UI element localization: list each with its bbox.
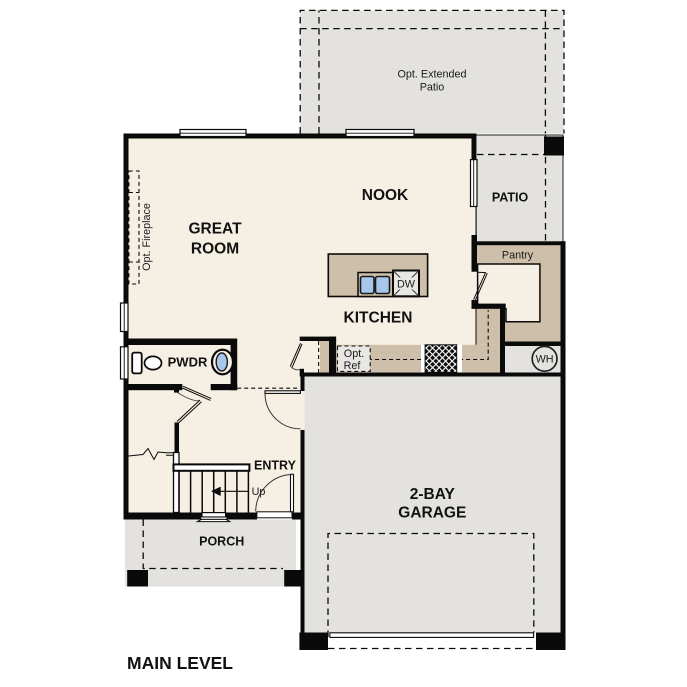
svg-text:Opt.: Opt. [344, 348, 364, 360]
svg-text:PATIO: PATIO [492, 191, 529, 205]
svg-text:DW: DW [397, 279, 416, 291]
svg-text:MAIN LEVEL: MAIN LEVEL [127, 653, 233, 673]
svg-text:PORCH: PORCH [199, 535, 244, 549]
svg-text:Up: Up [252, 486, 266, 498]
svg-text:Opt. Extended: Opt. Extended [397, 69, 466, 81]
svg-text:NOOK: NOOK [362, 187, 409, 204]
svg-text:PWDR: PWDR [168, 355, 208, 370]
svg-text:KITCHEN: KITCHEN [344, 309, 413, 326]
svg-text:Ref: Ref [344, 360, 362, 372]
svg-text:GREAT: GREAT [188, 220, 242, 237]
svg-text:ROOM: ROOM [191, 240, 239, 257]
svg-text:Opt. Fireplace: Opt. Fireplace [141, 203, 153, 271]
svg-text:2-BAY: 2-BAY [410, 486, 456, 503]
svg-text:ENTRY: ENTRY [254, 458, 297, 472]
svg-text:GARAGE: GARAGE [398, 504, 466, 521]
svg-text:Patio: Patio [420, 82, 445, 94]
svg-text:WH: WH [536, 354, 554, 366]
svg-text:Pantry: Pantry [502, 250, 534, 262]
